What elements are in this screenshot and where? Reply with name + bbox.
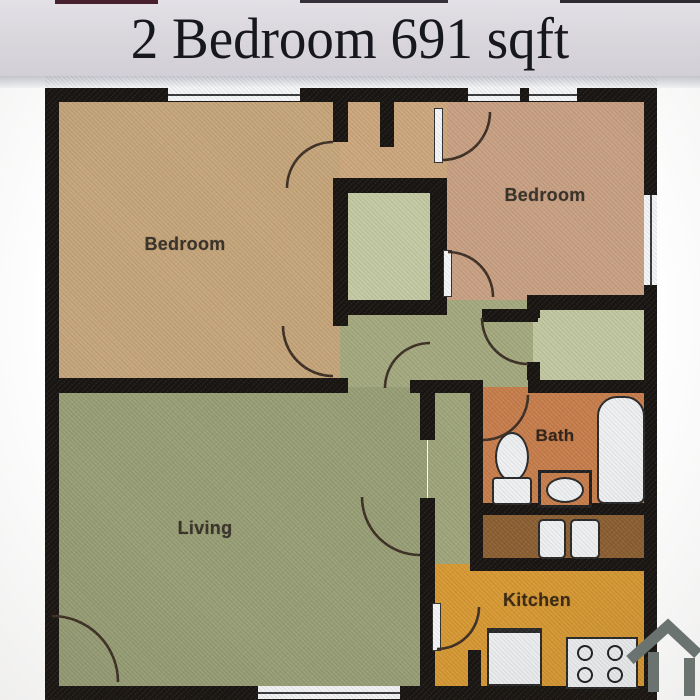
title-bar: 2 Bedroom 691 sqft	[0, 0, 700, 76]
wall-segment	[470, 558, 644, 571]
refrigerator	[487, 628, 542, 686]
window-line	[529, 94, 577, 96]
wall-segment	[470, 393, 483, 558]
wall-segment	[468, 650, 481, 686]
photo-edge-artifact	[300, 0, 448, 3]
label-bath: Bath	[505, 426, 605, 446]
floor-plan-image: 2 Bedroom 691 sqft	[0, 0, 700, 700]
burner-icon	[607, 667, 623, 683]
wall-segment	[528, 380, 644, 393]
toilet-tank	[492, 477, 532, 505]
label-living: Living	[140, 518, 270, 539]
burner-icon	[577, 645, 593, 661]
wall-segment	[333, 102, 348, 142]
room-closet-2	[527, 307, 649, 382]
door-leaf	[434, 108, 443, 163]
photo-edge-artifact	[55, 0, 158, 4]
window-line	[168, 94, 300, 96]
label-bedroom-right: Bedroom	[480, 185, 610, 206]
wall-segment	[420, 380, 435, 440]
label-kitchen: Kitchen	[472, 590, 602, 611]
wall-segment	[527, 362, 540, 380]
wall-right	[644, 88, 657, 700]
wall-segment	[380, 102, 394, 147]
door-leaf	[432, 603, 441, 651]
photo-edge-artifact	[560, 0, 700, 3]
window-line	[468, 94, 520, 96]
door-leaf	[443, 250, 452, 297]
room-living	[52, 387, 427, 693]
house-icon	[622, 612, 700, 700]
wall-segment	[527, 307, 540, 318]
page-title: 2 Bedroom 691 sqft	[131, 5, 569, 71]
wall-segment	[527, 295, 647, 310]
washer	[538, 519, 566, 559]
vanity	[538, 470, 592, 508]
window-line	[650, 195, 652, 285]
wall-left	[45, 88, 59, 700]
burner-icon	[577, 667, 593, 683]
wall-segment	[333, 300, 447, 315]
photo-gradient-band	[0, 76, 700, 88]
label-bedroom-left: Bedroom	[120, 234, 250, 255]
dryer	[570, 519, 600, 559]
burner-icon	[607, 645, 623, 661]
sink-icon	[546, 477, 584, 503]
bathtub	[597, 396, 645, 504]
wall-segment	[420, 650, 435, 686]
wall-segment	[59, 378, 348, 393]
window-line	[258, 692, 400, 694]
room-closet	[340, 186, 440, 308]
